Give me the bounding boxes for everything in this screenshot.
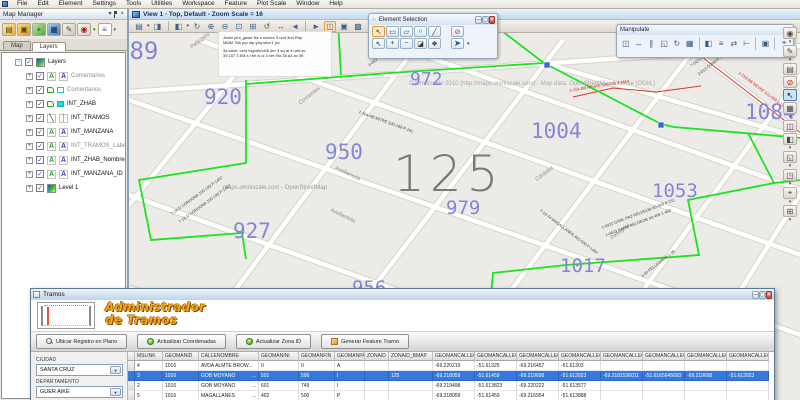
row-selector-cell[interactable] [128,361,135,371]
cell-geomancallecc[interactable]: -69.219498 [433,381,475,391]
select-element-icon[interactable]: ↖ [372,26,385,37]
cell-geomancallecc[interactable]: -51.613577 [559,381,601,391]
menu-workspace[interactable]: Workspace [177,0,219,7]
cell-geomancallecc[interactable] [685,361,727,371]
target-map-icon[interactable]: ◉ [77,23,91,36]
layer-checkbox[interactable]: ✓ [36,86,44,94]
view-icon [132,11,140,18]
scale-icon[interactable]: ◱ [658,36,670,50]
column-header-geomancallecc[interactable]: GEOMANCALLECC [685,352,727,361]
clipboard-icon[interactable]: ▤ [783,63,797,75]
column-header-geomanid[interactable]: GEOMANID [163,352,199,361]
table-row[interactable]: 31016GOB MOYANO...501599I125-69.218059-5… [128,371,774,381]
text-style-a-icon: A [47,142,56,151]
menu-utilities[interactable]: Utilities [146,0,177,7]
cell-geomancallecc[interactable] [601,361,643,371]
update-view-icon[interactable]: ↻ [191,21,203,32]
rotate-icon[interactable]: ↻ [671,36,683,50]
cell-geomancallecc[interactable] [643,381,685,391]
minimize-window-button[interactable]: — [752,291,759,299]
cell-geomanid[interactable]: 1016 [163,371,199,381]
copy-element-icon[interactable]: ◫ [783,120,797,132]
column-header-geomancallecc[interactable]: GEOMANCALLECC [601,352,643,361]
menu-edit[interactable]: Edit [32,0,53,7]
column-header-geomanini[interactable]: GEOMANINI [259,352,299,361]
cell-value [687,361,726,370]
polygon-select-icon[interactable]: ▱ [400,26,413,37]
cell-geomanparidad[interactable]: A [335,361,365,371]
row-selector-cell[interactable] [128,381,135,391]
cell-geomanid[interactable]: 1016 [163,381,199,391]
view-previous-icon[interactable]: ◄ [289,21,301,32]
cell-mslink[interactable]: 4 [135,361,163,371]
row-selector-header [128,352,135,361]
map-manager-title: Map Manager [3,11,43,18]
manzana-number: 920 [204,85,242,109]
manzana-number: 927 [233,219,271,243]
rotate-view-icon[interactable]: ↺ [261,21,273,32]
cell-value [603,391,642,400]
button-ubicar-registro-en-plano[interactable]: Ubicar Registro en Plano [36,334,127,349]
layer-item-int_manzana_id[interactable]: +✓AAINT_MANZANA_ID [2,167,125,181]
cell-geomanfin[interactable]: 599 [299,371,335,381]
cell-mslink[interactable]: 3 [135,371,163,381]
tramo-annotation: J-40 PELLEGRINI 1-99 [640,249,676,279]
tab-map[interactable]: Map [3,41,31,50]
cell-value: AVDA ALMTE BROW... [201,361,258,370]
cell-geomancallecc[interactable]: -51.6165645693 [643,371,685,381]
inside-selection-mode-icon[interactable]: ◪ [414,38,427,49]
cell-value: -51.613823 [477,381,516,390]
clip-volume-icon[interactable]: ▣ [338,21,350,32]
row-selector-cell[interactable] [128,371,135,381]
button-label: Actualizar Coordenadas [157,339,216,345]
layer-checkbox[interactable]: ✓ [36,72,44,80]
cell-value [391,361,432,370]
dropdown-caret-icon[interactable]: ▾ [789,218,792,222]
cell-geomanini[interactable]: 501 [259,371,299,381]
add-map-icon[interactable]: + [32,23,46,36]
cell-value: -69.219698 [519,371,558,380]
close-toolbox-button[interactable]: ✕ [489,16,495,24]
cell-mslink[interactable]: 5 [135,391,163,400]
column-header-geomanfin[interactable]: GEOMANFIN [299,352,335,361]
cell-geomancallecc[interactable]: -51.613888 [559,391,601,400]
measure-icon[interactable]: ⌖ [783,187,797,199]
row-selector-cell[interactable] [128,391,135,400]
text-style-b-icon: A [59,156,68,165]
cell-geomancallecc[interactable]: -69.216954 [517,391,559,400]
menu-feature[interactable]: Feature [220,0,252,7]
cell-value: 1016 [165,381,198,390]
dropdown-caret-icon[interactable]: ▾ [789,146,792,150]
manzana-number: 972 [410,69,443,90]
toolbar-separator [699,37,700,50]
cell-geomanid[interactable]: 1016 [163,391,199,400]
fit-view-icon[interactable]: ⊞ [247,21,259,32]
cell-geomancallecc[interactable]: -51.61325 [475,361,517,371]
layer-item-int_tramos_label[interactable]: +✓AAINT_TRAMOS_Label [2,139,125,153]
circle-select-icon[interactable]: ○ [414,26,427,37]
close-panel-icon[interactable]: × [120,11,124,18]
selection-pointer-icon[interactable]: ↖ [783,89,797,101]
layer-label: INT_MANZANA [71,129,113,135]
cell-geomancallecc[interactable]: -51.613823 [475,381,517,391]
select-value: GUER AIKE [40,389,70,395]
cell-geomancallecc[interactable]: -69.220222 [517,381,559,391]
delete-element-icon[interactable]: ⊘ [783,76,797,88]
main-tool-frame: ◉▾✎▾▤⊘↖▦▾◫◧▾◱▾◳▾⌖▾⊞▾ [780,24,800,400]
cell-zonaid[interactable] [365,371,389,381]
layer-checkbox[interactable]: ✓ [36,184,44,192]
cell-geomancallecc[interactable]: -51.613923 [727,371,769,381]
layer-item-comentarios[interactable]: +✓AAComentarios [2,69,125,83]
expand-icon[interactable]: + [26,143,33,150]
cell-value: 125 [391,371,432,380]
cell-geomanini[interactable]: 402 [259,391,299,400]
minimize-toolbox-button[interactable]: — [475,16,482,24]
tramos-table: MSLINKGEOMANIDCALLENOMBREGEOMANINIGEOMAN… [127,352,774,400]
street-name-label: Pellegrini [190,33,212,50]
cell-geomanparidad[interactable]: I [335,381,365,391]
toolbar-separator [774,37,775,50]
manipulate-toolbox: Manipulate ✕ ◫↔∥◱↻▦◧≡⇄⊢▣⌖ [616,24,794,58]
pan-view-icon[interactable]: ↔ [275,21,287,32]
chevron-down-icon[interactable]: ▼ [110,388,121,396]
cell-value: -51.61459 [477,391,516,400]
column-header-geomancallecc[interactable]: GEOMANCALLECC [643,352,685,361]
layer-item-level 1[interactable]: +✓Level 1 [2,181,125,195]
window-stack-icon[interactable]: ◳ [783,169,797,181]
cell-geomancallecc[interactable] [643,361,685,371]
button-generar-feature-tramo[interactable]: Generar Feature Tramo [321,334,409,349]
new-selection-mode-icon[interactable]: ↖ [372,38,385,49]
dropdown-caret-icon[interactable]: ▾ [789,200,792,204]
view-attributes-icon[interactable]: ▤ [133,21,145,32]
tramos-titlebar[interactable]: Tramos —▢✕ [31,289,774,300]
column-header-geomanparidad[interactable]: GEOMANPARIDAD [335,352,365,361]
cell-zonaid_bmap[interactable] [389,381,433,391]
layers-root-label: Layers [48,59,66,65]
cell-value [603,361,642,370]
panel-menu-caret-icon[interactable]: ▾ [108,11,111,18]
expand-icon[interactable]: + [26,101,33,108]
column-header-mslink[interactable]: MSLINK [135,352,163,361]
cell-geomancallecc[interactable]: -69.218059 [433,391,475,400]
cell-geomanfin[interactable]: 0 [299,361,335,371]
line-select-icon[interactable]: ╱ [428,26,441,37]
layer-checkbox[interactable]: ✓ [36,128,44,136]
stretch-icon[interactable]: ⇄ [728,36,740,50]
cell-geomancallecc[interactable]: -69.216457 [517,361,559,371]
cell-geomancallecc[interactable]: -69.219698 [685,371,727,381]
cell-value: -69.216954 [519,391,558,400]
cell-value [645,361,684,370]
element-information-icon[interactable]: ◉ [783,27,797,39]
maximize-window-button[interactable]: ▢ [759,291,766,299]
layers-tree-root[interactable]: −✓Layers [2,55,125,69]
pointer-tool-icon[interactable]: ➤ [451,38,464,49]
move-icon[interactable]: ↔ [633,36,645,50]
layer-label: Comentarios [67,87,101,93]
layer-checkbox[interactable]: ✓ [36,114,44,122]
subtract-selection-mode-icon[interactable]: − [400,38,413,49]
tramos-logo-text: Administrador de Tramos [105,301,205,327]
application-window: FileEditElementSettingsToolsUtilitiesWor… [0,0,800,400]
tramos-window-icon [33,291,40,298]
layer-item-int_manzana[interactable]: +✓AAINT_MANZANA [2,125,125,139]
cell-geomancallecc[interactable]: -69.218059 [433,371,475,381]
map-library-icon[interactable]: ▣ [17,23,31,36]
cell-value [391,381,432,390]
cell-geomancallecc[interactable]: -69.220219 [433,361,475,371]
cell-zonaid_bmap[interactable] [389,361,433,371]
dropdown-caret-icon[interactable]: ▾ [114,27,117,33]
cell-zonaid_bmap[interactable]: 125 [389,371,433,381]
cell-geomanparidad[interactable]: P [335,391,365,400]
change-attributes-icon[interactable]: ▣ [759,36,771,50]
cell-geomancallecc[interactable] [727,391,769,400]
dropdown-caret-icon[interactable]: ▾ [789,115,792,119]
note-text-line: 39.157 3 El8 s t fel w ui 3 net 9ra 35 a… [223,53,327,58]
cell-geomanid[interactable]: 1016 [163,361,199,371]
map-manager-titlebar: Map Manager ▾ × [0,9,127,20]
expand-icon[interactable]: + [26,73,33,80]
menu-window[interactable]: Window [291,0,324,7]
cell-callenombre[interactable]: GOB MOYANO... [199,371,259,381]
expand-icon[interactable]: + [26,185,33,192]
cell-value: -51.61303 [561,361,600,370]
button-actualizar-zona-id[interactable]: Actualizar Zona ID [236,334,311,349]
cell-value: P [337,391,364,400]
mirror-icon[interactable]: ◧ [702,36,714,50]
dropdown-caret-icon[interactable]: ▾ [789,40,792,44]
cell-geomanini[interactable]: 0 [259,361,299,371]
column-header-geomancallecc[interactable]: GEOMANCALLECC [559,352,601,361]
cell-value: -51.613923 [729,371,768,380]
cell-value [645,381,684,390]
cell-geomancallecc[interactable]: -51.61459 [475,391,517,400]
cell-geomancallecc[interactable]: -51.61459 [475,371,517,381]
column-header-geomancallecc[interactable]: GEOMANCALLECC [475,352,517,361]
column-header-geomancallecc[interactable]: GEOMANCALLECC [433,352,475,361]
cells-icon[interactable]: ⊞ [783,205,797,217]
copy-icon[interactable]: ◫ [620,36,632,50]
cell-zonaid_bmap[interactable] [389,391,433,400]
cell-mslink[interactable]: 2 [135,381,163,391]
chevron-down-icon[interactable]: ▼ [110,366,121,374]
column-header-callenombre[interactable]: CALLENOMBRE [199,352,259,361]
align-icon[interactable]: ≡ [715,36,727,50]
cell-geomancallecc[interactable]: -51.61303 [559,361,601,371]
cell-geomancallecc[interactable]: -69.2181536011 [601,371,643,381]
button-label: Actualizar Zona ID [256,339,301,345]
expand-icon[interactable]: + [26,171,33,178]
disable-selection-icon[interactable]: ⊘ [451,26,464,37]
clip-mask-icon[interactable]: ▩ [352,21,364,32]
dropdown-caret-icon[interactable]: ▾ [187,23,190,29]
layer-checkbox[interactable]: ✓ [36,156,44,164]
street-name-label: Córdoba [534,165,554,183]
cell-zonaid[interactable] [365,391,389,400]
street-name-label: Corrientes [298,86,322,106]
cell-zonaid[interactable] [365,381,389,391]
cell-geomancallecc[interactable] [601,381,643,391]
cell-geomancallecc[interactable] [685,391,727,400]
fence-icon[interactable]: ▦ [783,102,797,114]
cell-callenombre[interactable]: GOB MOYANO... [199,381,259,391]
open-map-icon[interactable]: ▤ [2,23,16,36]
expand-icon[interactable]: + [26,87,33,94]
restore-toolbox-button[interactable]: ▢ [482,16,489,24]
column-header-zonaid_bmap[interactable]: ZONAID_BMAP [389,352,433,361]
presentation-icon[interactable]: ◨ [152,21,164,32]
select-departamento[interactable]: GUER AIKE▼ [36,386,123,398]
cell-zonaid[interactable] [365,361,389,371]
cell-value [367,361,388,370]
overlap-selection-mode-icon[interactable]: ❖ [428,38,441,49]
dropdown-caret-icon[interactable]: ▾ [147,23,150,29]
cell-geomancallecc[interactable]: -69.219698 [517,371,559,381]
cell-value: GOB MOYANO [201,371,252,380]
text-style-b-icon: A [59,72,68,81]
collapse-icon[interactable]: − [15,59,22,66]
cell-value: 4 [137,361,162,370]
map-watermark: maps.omniscale.com - OpenStreetMap [223,185,327,191]
menu-help[interactable]: Help [324,0,347,7]
ellipsis-button[interactable]: ... [252,371,258,380]
edit-redline-icon[interactable]: ✎ [62,23,76,36]
ellipsis-button[interactable]: ... [252,391,258,400]
zone-id-big-number: 125 [393,145,503,203]
layer-checkbox[interactable]: ✓ [36,100,44,108]
expand-icon[interactable]: + [26,115,33,122]
cell-value: 1016 [165,391,198,400]
raster-style-icon [47,184,56,193]
menu-settings[interactable]: Settings [88,0,122,7]
cell-value [367,371,388,380]
map-view-icon[interactable]: ▦ [47,23,61,36]
menu-plot-scale[interactable]: Plot Scale [252,0,291,7]
column-header-geomancallecc[interactable]: GEOMANCALLECC [727,352,769,361]
cell-value: I [337,371,364,380]
button-actualizar-coordenadas[interactable]: Actualizar Coordenadas [137,334,226,349]
view-next-icon[interactable]: ► [310,21,322,32]
layer-checkbox[interactable]: ✓ [25,58,33,66]
button-label: Generar Feature Tramo [341,339,399,345]
table-row[interactable]: 51016MAGALLANES...402500P-69.218059-51.6… [128,391,774,400]
layer-display-icon[interactable]: ≡ [98,23,112,36]
view-window-icon[interactable]: ◱ [783,151,797,163]
move-parallel-icon[interactable]: ∥ [646,36,658,50]
close-window-button[interactable]: ✕ [766,291,772,299]
cell-geomanini[interactable]: 601 [259,381,299,391]
move-to-contact-icon[interactable]: ⊢ [741,36,753,50]
expand-icon[interactable]: + [26,129,33,136]
cell-value: -51.613888 [561,391,600,400]
zoom-out-icon[interactable]: ⊖ [219,21,231,32]
layer-item-int_tramos[interactable]: +✓╲│INT_TRAMOS [2,111,125,125]
manzana-number: 1017 [560,255,606,277]
column-header-geomancallecc[interactable]: GEOMANCALLECC [517,352,559,361]
text-style-b-icon: A [59,170,68,179]
table-row[interactable]: 21016GOB MOYANO...601749I-69.219498-51.6… [128,381,774,391]
toolbar-separator [305,21,306,31]
manzana-number: 979 [446,197,480,219]
array-icon[interactable]: ▦ [684,36,696,50]
select-value: SANTA CRUZ [40,367,74,373]
toolbar-separator [168,21,169,31]
cell-geomancallecc[interactable] [727,381,769,391]
dropdown-caret-icon[interactable]: ▾ [789,182,792,186]
cell-value: -69.216457 [519,361,558,370]
expand-icon[interactable]: + [26,157,33,164]
dropdown-caret-icon[interactable]: ▾ [789,164,792,168]
menu-element[interactable]: Element [54,0,88,7]
column-header-zonaid[interactable]: ZONAID [365,352,389,361]
manipulate-toolbox-icon[interactable]: ◧ [783,133,797,145]
pin-panel-icon[interactable] [114,11,117,18]
table-row[interactable]: 41016AVDA ALMTE BROW...00A-69.220219-51.… [128,361,774,371]
more-options-caret-icon[interactable]: ▾ [467,41,470,47]
polygon-style-icon [47,101,54,107]
cell-callenombre[interactable]: AVDA ALMTE BROW... [199,361,259,371]
menu-tools[interactable]: Tools [121,0,146,7]
polygon-style-icon [47,87,54,93]
adjust-colors-icon[interactable]: ◧ [173,21,185,32]
cell-geomanfin[interactable]: 749 [299,381,335,391]
manipulate-titlebar[interactable]: Manipulate ✕ [617,25,793,35]
cell-geomancallecc[interactable] [643,391,685,400]
dropdown-caret-icon[interactable]: ▾ [93,27,96,33]
layer-checkbox[interactable]: ✓ [36,142,44,150]
add-selection-mode-icon[interactable]: + [386,38,399,49]
tab-layers[interactable]: Layers [32,42,66,51]
copy-view-icon[interactable]: ◫ [324,21,336,32]
cell-value: I [337,381,364,390]
button-label: Ubicar Registro en Plano [56,339,117,345]
cell-value: 500 [301,391,334,400]
layer-item-int_zhab[interactable]: +✓INT_ZHAB [2,97,125,111]
menu-file[interactable]: File [12,0,32,7]
layer-checkbox[interactable]: ✓ [36,170,44,178]
toolbox-grip-icon: ⁘ [371,16,377,24]
window-area-icon[interactable]: ⊡ [233,21,245,32]
zoom-in-icon[interactable]: ⊕ [205,21,217,32]
modify-element-icon[interactable]: ✎ [783,45,797,57]
cell-geomanparidad[interactable]: I [335,371,365,381]
dropdown-caret-icon[interactable]: ▾ [789,58,792,62]
cell-callenombre[interactable]: MAGALLANES... [199,391,259,400]
cell-geomancallecc[interactable]: -51.613923 [559,371,601,381]
generate-feature-icon [331,338,338,345]
cell-geomancallecc[interactable] [727,361,769,371]
map-manager-tabs: MapLayers [0,39,127,51]
cell-geomancallecc[interactable] [685,381,727,391]
cell-geomanfin[interactable]: 500 [299,391,335,400]
text-style-a-icon: A [47,170,56,179]
element-selection-titlebar[interactable]: ⁘ Element Selection —▢✕ [369,14,497,25]
menu-items: FileEditElementSettingsToolsUtilitiesWor… [12,0,348,8]
select-ciudad[interactable]: SANTA CRUZ▼ [36,364,123,376]
text-style-b-icon: A [59,142,68,151]
layer-item-comentarios[interactable]: +✓Comentarios [2,83,125,97]
rectangle-select-icon[interactable]: ▭ [386,26,399,37]
layer-item-int_zhab_nombre[interactable]: +✓AAINT_ZHAB_Nombre [2,153,125,167]
element-selection-window-buttons: —▢✕ [475,17,495,23]
cell-geomancallecc[interactable] [601,391,643,400]
ellipsis-button[interactable]: ... [252,381,258,390]
